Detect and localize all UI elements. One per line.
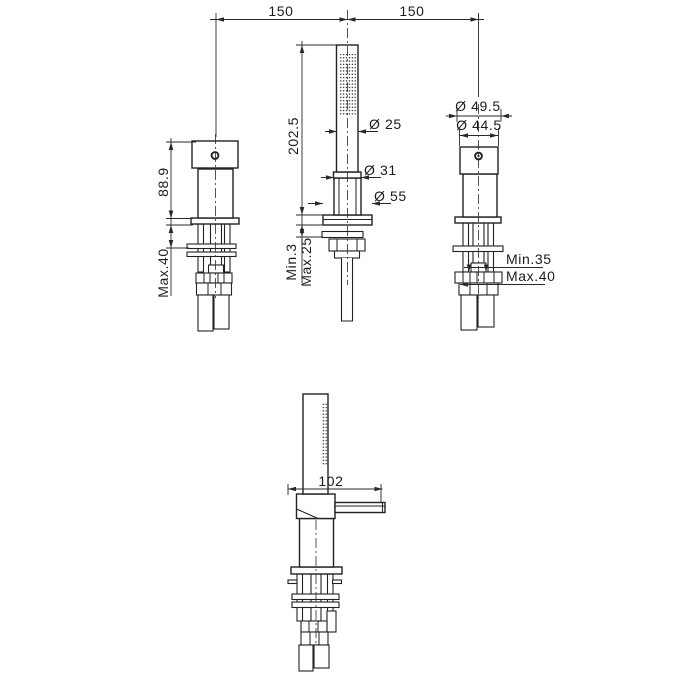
dim-label-right-max40: Max.40	[506, 268, 556, 284]
handle-flange	[191, 218, 239, 224]
deck-plate	[453, 246, 503, 252]
handle-head	[460, 147, 498, 174]
handle-head	[192, 141, 238, 168]
base-plate	[291, 567, 342, 574]
supply-hoses	[198, 295, 229, 331]
dim-label-dia25: Ø 25	[369, 116, 402, 132]
supply-pipe	[342, 258, 353, 321]
right-fixture-mounting-hardware	[453, 223, 503, 330]
faucet-technical-drawing: 150 150 88.9 Max.40 202.5 Min.3 Max.25	[0, 0, 700, 700]
spray-face-dots-side	[322, 403, 328, 465]
lever-spout	[335, 503, 385, 513]
dim-label-dia495: Ø 49.5	[455, 98, 501, 114]
diameter-445-dimension: Ø 44.5	[456, 117, 502, 146]
left-fixture-dimensions: 88.9 Max.40	[155, 138, 196, 298]
side-view	[288, 394, 385, 671]
dim-label-max25: Max.25	[298, 237, 314, 287]
left-fixture-mounting-hardware	[187, 224, 236, 331]
handle-body	[463, 174, 497, 217]
dim-label-height-889: 88.9	[155, 167, 171, 197]
supply-hoses	[299, 645, 329, 671]
deck-plate	[322, 232, 363, 238]
dim-label-left-max40: Max.40	[155, 248, 171, 298]
hex-nut	[329, 239, 365, 251]
dim-label-span-left: 150	[268, 3, 293, 19]
dim-label-min3: Min.3	[283, 243, 299, 280]
technical-drawing-page: 150 150 88.9 Max.40 202.5 Min.3 Max.25	[0, 0, 700, 700]
dim-label-span-right: 150	[399, 3, 424, 19]
deck-plate	[292, 594, 339, 600]
right-fixture-view	[453, 147, 503, 330]
deck-plate	[292, 602, 339, 608]
supply-hoses	[461, 295, 494, 330]
dim-label-102: 102	[318, 473, 343, 489]
side-mounting-hardware	[288, 574, 342, 671]
holder-column	[300, 519, 334, 568]
middle-mounting-hardware	[322, 232, 365, 322]
dim-label-min35: Min.35	[506, 251, 552, 267]
dim-label-dia31: Ø 31	[364, 162, 397, 178]
left-fixture-view	[187, 141, 239, 331]
handle-flange	[455, 217, 501, 223]
side-bracket	[327, 611, 336, 632]
mounting-nuts	[301, 621, 328, 645]
dim-label-dia55: Ø 55	[374, 188, 407, 204]
dim-label-height-2025: 202.5	[285, 117, 301, 155]
deck-plate	[187, 252, 236, 257]
holder-body	[297, 494, 336, 519]
deck-plate	[187, 244, 236, 249]
middle-fixture-view	[322, 45, 372, 321]
mounting-nuts	[196, 273, 232, 295]
dim-label-dia445: Ø 44.5	[456, 117, 502, 133]
